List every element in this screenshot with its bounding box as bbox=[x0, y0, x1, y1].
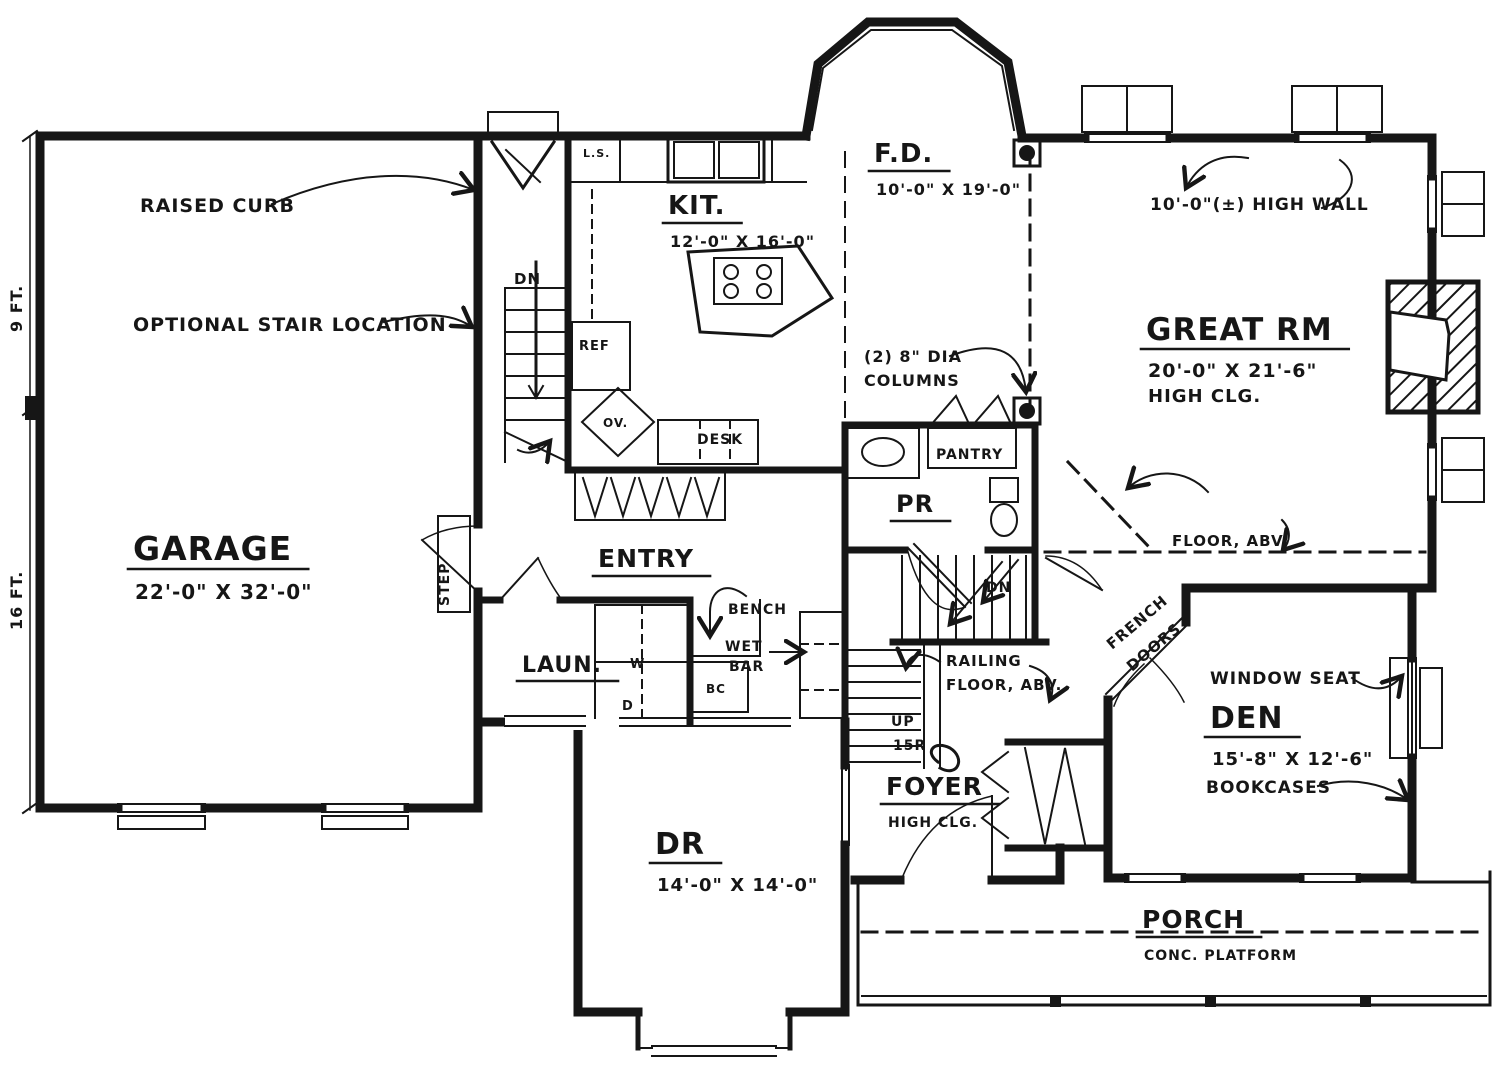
wet-bar-counter bbox=[800, 612, 845, 718]
room-note: CONC. PLATFORM bbox=[1144, 948, 1297, 964]
dr-bay-window bbox=[638, 1046, 790, 1056]
room-label: PORCH bbox=[1142, 905, 1245, 934]
doors bbox=[422, 526, 1188, 878]
washer-label: W bbox=[630, 657, 645, 672]
dim-16ft: 16 FT. bbox=[7, 571, 26, 630]
room-dims: 10'-0" X 19'-0" bbox=[876, 180, 1021, 199]
dimension-line bbox=[23, 131, 37, 813]
burner-icon bbox=[757, 284, 771, 298]
floor-above-curl-arrow bbox=[1128, 473, 1208, 492]
foyer-dr-opening bbox=[842, 765, 849, 845]
bench-note: BENCH bbox=[728, 602, 787, 618]
column-icon bbox=[1019, 145, 1035, 161]
room-note: HIGH CLG. bbox=[1148, 386, 1261, 407]
closet-hangers-icon bbox=[583, 478, 719, 516]
room-note: HIGH CLG. bbox=[888, 815, 978, 831]
room-dims: 20'-0" X 21'-6" bbox=[1148, 360, 1317, 382]
closet-walls bbox=[1008, 742, 1108, 848]
columns-note-line1: (2) 8" DIA bbox=[864, 347, 962, 366]
raised-curb-note: RAISED CURB bbox=[140, 195, 295, 217]
pr-sink-icon bbox=[862, 438, 904, 466]
french-door-swing bbox=[1114, 658, 1184, 706]
closet-hangers-icon bbox=[1025, 748, 1085, 844]
burner-icon bbox=[757, 265, 771, 279]
bookcases-note: BOOKCASES bbox=[1206, 778, 1331, 798]
room-label: DR bbox=[655, 827, 705, 862]
raised-curb-arrow bbox=[272, 176, 474, 204]
fixtures bbox=[438, 112, 1478, 844]
room-label: GARAGE bbox=[133, 529, 292, 568]
dr-cased-opening bbox=[620, 718, 790, 726]
stair-dn-label: DN bbox=[514, 270, 541, 288]
dr-exterior-walls bbox=[480, 722, 845, 1012]
newel-curl-icon bbox=[931, 745, 958, 770]
optional-stair-note: OPTIONAL STAIR LOCATION bbox=[133, 314, 447, 336]
room-label: PR bbox=[896, 490, 934, 518]
porch-column bbox=[1360, 996, 1371, 1007]
bookcases-arrow bbox=[1318, 782, 1408, 800]
railing-note-line1: RAILING bbox=[946, 652, 1022, 670]
garage-walls bbox=[40, 136, 478, 808]
high-wall-arrow bbox=[1186, 157, 1248, 188]
room-dims: 15'-8" X 12'-6" bbox=[1212, 749, 1373, 770]
cooktop bbox=[714, 258, 782, 304]
refrigerator bbox=[572, 322, 630, 390]
room-label: F.D. bbox=[874, 139, 933, 169]
room-label: ENTRY bbox=[598, 544, 694, 573]
stair-risers-label: 15R bbox=[893, 738, 926, 754]
garage-window-box bbox=[322, 816, 408, 829]
window-box bbox=[1420, 668, 1442, 748]
porch-column bbox=[1205, 996, 1216, 1007]
dimension-break bbox=[25, 396, 36, 420]
columns-note-line2: COLUMNS bbox=[864, 371, 960, 390]
garage-window-box bbox=[118, 816, 205, 829]
dim-9ft: 9 FT. bbox=[7, 285, 26, 332]
porch-column bbox=[1050, 996, 1061, 1007]
toilet-bowl-icon bbox=[991, 504, 1017, 536]
firebox bbox=[1390, 312, 1449, 380]
room-dims: 12'-0" X 16'-0" bbox=[670, 232, 815, 251]
laundry-door-leaf bbox=[500, 558, 538, 600]
stair-up-label: UP bbox=[891, 714, 915, 730]
step-note: STEP bbox=[437, 563, 453, 606]
wall-oven bbox=[668, 138, 764, 182]
pantry-label: PANTRY bbox=[936, 447, 1003, 463]
floor-plan-canvas: GARAGE22'-0" X 32'-0"KIT.12'-0" X 16'-0"… bbox=[0, 0, 1500, 1070]
high-wall-note: 10'-0"(±) HIGH WALL bbox=[1150, 195, 1369, 215]
floor-above-note: FLOOR, ABV. bbox=[1172, 532, 1288, 550]
dr-bay-sides bbox=[638, 1012, 790, 1048]
kitchen-island bbox=[688, 246, 832, 336]
oven-label: OV. bbox=[603, 416, 628, 430]
desk-label: DESK bbox=[697, 432, 743, 448]
exterior-walls bbox=[40, 22, 1432, 1012]
ref-label: REF bbox=[579, 339, 610, 354]
wet-bar-dashed bbox=[800, 644, 845, 690]
ls-label: L.S. bbox=[583, 147, 610, 160]
porch-structure bbox=[858, 872, 1490, 1007]
closet-bifold-icon bbox=[982, 752, 1008, 838]
wall-oven-door bbox=[674, 142, 714, 178]
backstair-dn-label: DN bbox=[986, 580, 1011, 596]
window-seat-note: WINDOW SEAT bbox=[1210, 669, 1361, 689]
room-dims: 22'-0" X 32'-0" bbox=[135, 580, 313, 604]
room-dims: 14'-0" X 14'-0" bbox=[657, 875, 818, 896]
room-label: GREAT RM bbox=[1146, 312, 1333, 348]
bc-label: BC bbox=[706, 682, 726, 696]
room-label: DEN bbox=[1210, 701, 1284, 736]
porch-edge bbox=[858, 872, 1490, 1005]
dryer-label: D bbox=[622, 699, 634, 714]
chimney-cross bbox=[506, 150, 540, 182]
pr-door-leaf bbox=[908, 544, 971, 607]
wet-bar-note-line1: WET bbox=[725, 639, 763, 655]
pr-vanity bbox=[847, 428, 919, 478]
basement-stair-treads bbox=[902, 556, 1026, 640]
high-wall-dashed bbox=[1068, 462, 1150, 548]
room-label: LAUN. bbox=[522, 653, 602, 678]
toilet-tank-icon bbox=[990, 478, 1018, 502]
laundry-door-swing bbox=[538, 558, 562, 600]
room-label: FOYER bbox=[886, 772, 983, 801]
floor-plan-page: GARAGE22'-0" X 32'-0"KIT.12'-0" X 16'-0"… bbox=[0, 0, 1500, 1070]
dining-bay-wall bbox=[806, 22, 1022, 136]
railing-note-line2: FLOOR, ABV. bbox=[946, 676, 1062, 694]
column-icon bbox=[1019, 403, 1035, 419]
burner-icon bbox=[724, 284, 738, 298]
wall-oven-door bbox=[719, 142, 759, 178]
burner-icon bbox=[724, 265, 738, 279]
wet-bar-note-line2: BAR bbox=[729, 659, 764, 675]
foyer-front-wall bbox=[855, 848, 1060, 880]
front-door-swing bbox=[902, 796, 992, 878]
room-label: KIT. bbox=[668, 191, 726, 221]
